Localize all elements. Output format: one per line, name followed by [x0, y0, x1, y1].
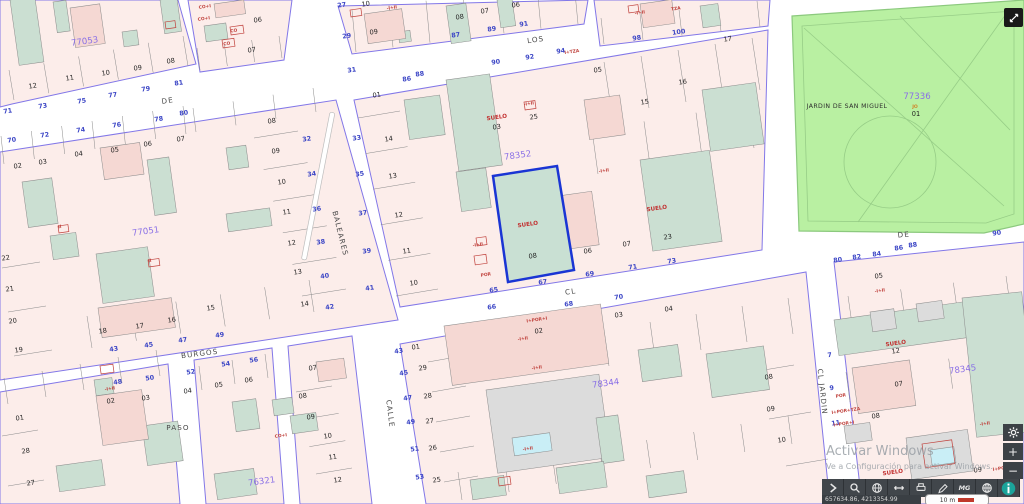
parcel-number: 28: [21, 446, 30, 455]
parcel-number: 07: [176, 134, 185, 143]
street-number: 90: [491, 57, 501, 66]
parcel[interactable]: [404, 95, 445, 140]
street-number: 65: [489, 285, 499, 294]
parcel[interactable]: [204, 23, 228, 42]
mg-label: MG: [959, 484, 971, 492]
parcel-number: 05: [110, 145, 119, 154]
parcel-number: 10: [777, 435, 786, 444]
parcel-number: 17: [723, 34, 732, 43]
parcel-number: 05: [214, 380, 223, 389]
street-number: 74: [76, 125, 86, 134]
parcel-number: 23: [663, 232, 672, 241]
street-number: 92: [525, 52, 535, 61]
parcel-number: 16: [167, 315, 176, 324]
parcel-number: 06: [253, 15, 262, 24]
block-id: 77336: [903, 92, 930, 102]
gear-icon: [1007, 426, 1020, 439]
street-number: 73: [667, 256, 677, 265]
parcel-number: 08: [528, 251, 537, 260]
parcel-number: 06: [583, 246, 592, 255]
parcel-number: 10: [323, 431, 332, 440]
street-number: 7: [827, 351, 833, 360]
pencil-icon: [937, 482, 949, 494]
parcel-number: 08: [298, 391, 307, 400]
parcel-number: 12: [28, 81, 37, 90]
parcel[interactable]: [702, 82, 764, 151]
parcel-number: 16: [678, 77, 687, 86]
street-number: 87: [451, 30, 461, 39]
street-number: 75: [77, 96, 87, 105]
parcel[interactable]: [640, 150, 722, 251]
parcel-number: 06: [511, 0, 520, 9]
parcel[interactable]: [930, 447, 956, 466]
parcel-number: 13: [293, 267, 302, 276]
parcel-number: 02: [534, 326, 543, 335]
street-number: 78: [154, 114, 164, 123]
parcel[interactable]: [640, 0, 675, 28]
parcel[interactable]: [226, 145, 249, 170]
street-number: 49: [406, 417, 416, 426]
parcel-number: 02: [13, 161, 22, 170]
parcel-number: 01: [372, 90, 381, 99]
parcel[interactable]: [852, 360, 916, 414]
street-number: 86: [894, 243, 904, 252]
parcel-number: 04: [664, 304, 673, 313]
scale-label: 10 m: [940, 497, 955, 504]
settings-button[interactable]: [1003, 424, 1023, 441]
parcel-number: 21: [5, 284, 14, 293]
parcel-number: 19: [14, 345, 23, 354]
scale-indicator: 10 m: [925, 494, 989, 504]
street-number: 91: [519, 19, 529, 28]
street-number: 37: [358, 208, 368, 217]
globe-icon: [981, 482, 993, 494]
construction-label: POR: [835, 392, 847, 399]
street-number: 70: [7, 135, 17, 144]
street-number: 45: [399, 368, 409, 377]
street-number: 73: [38, 101, 48, 110]
street-number: 90: [992, 228, 1002, 237]
street-number: 71: [628, 262, 638, 271]
parcel-number: 01: [411, 342, 420, 351]
parcel-number: 15: [640, 97, 649, 106]
street-number: 43: [109, 344, 119, 353]
parcel-number: 27: [26, 478, 35, 487]
parcel-number: 25: [432, 475, 441, 484]
street-number: 67: [538, 277, 548, 286]
street-number: 42: [325, 302, 335, 311]
street-number: 56: [249, 355, 259, 364]
parcel-number: 14: [384, 134, 393, 143]
parcel-number: 09: [369, 27, 378, 36]
street-number: 40: [320, 271, 330, 280]
street-number: 72: [40, 130, 50, 139]
street-number: 69: [585, 269, 595, 278]
street-number: 79: [141, 84, 151, 93]
street-number: 88: [908, 240, 918, 249]
street-number: 54: [221, 359, 231, 368]
parcel-number: 02: [106, 396, 115, 405]
plus-icon: +: [1008, 446, 1018, 458]
parcel[interactable]: [456, 168, 491, 212]
street-name: CL: [564, 286, 576, 296]
parcel-number: 08: [871, 411, 880, 420]
parcel-number: 12: [394, 210, 403, 219]
street-number: 29: [342, 31, 352, 40]
parcel[interactable]: [232, 399, 260, 432]
street-name: DE: [161, 95, 174, 106]
parcel-number: 29: [418, 363, 427, 372]
street-number: 27: [337, 0, 347, 9]
parcel-number: 04: [183, 386, 192, 395]
street-number: 71: [3, 106, 13, 115]
parcel-number: 03: [614, 310, 623, 319]
parcel-number: 08: [455, 12, 464, 21]
street-number: 33: [352, 133, 362, 142]
parcel-number: 12: [333, 475, 342, 484]
street-number: 77: [108, 90, 118, 99]
parcel-number: 08: [764, 372, 773, 381]
construction-label: CO: [230, 28, 238, 35]
parcel-number: 07: [894, 379, 903, 388]
parcel-number: 08: [267, 116, 276, 125]
street-number: 51: [410, 444, 420, 453]
street-number: 49: [215, 330, 225, 339]
coordinates-readout: 657634.86, 4213354.99: [822, 495, 921, 504]
sphere-icon: [871, 482, 883, 494]
street-number: 35: [355, 169, 365, 178]
street-number: 45: [144, 340, 154, 349]
parcel-number: 01: [912, 110, 920, 118]
street-number: 38: [316, 237, 326, 246]
parcel-number: 11: [65, 73, 74, 82]
minus-icon: −: [1008, 465, 1018, 477]
street-number: 66: [487, 302, 497, 311]
parcel-number: 22: [1, 253, 10, 262]
parcel[interactable]: [316, 358, 347, 382]
parcel-number: 05: [593, 65, 602, 74]
parcel[interactable]: [584, 95, 625, 140]
parcel-number: 10: [409, 278, 418, 287]
street-number: 47: [403, 393, 413, 402]
catastro-map-viewer: 77053770517835278344783457632177336JARDI…: [0, 0, 1024, 504]
street-number: 48: [113, 377, 123, 386]
parcel-number: 11: [328, 452, 337, 461]
search-icon: [849, 482, 861, 494]
parcel-number: 05: [874, 271, 883, 280]
parcel-number: 03: [38, 157, 47, 166]
parcel-number: 09: [306, 412, 315, 421]
fullscreen-button[interactable]: [1004, 8, 1023, 27]
parcel-number: 06: [143, 139, 152, 148]
parcel-number: 17: [135, 321, 144, 330]
parcel-number: 07: [247, 45, 256, 54]
street-number: 43: [394, 346, 404, 355]
parcel[interactable]: [706, 346, 770, 398]
parcel[interactable]: [272, 397, 294, 416]
info-button[interactable]: [998, 479, 1020, 497]
zoom-in-button[interactable]: +: [1003, 443, 1023, 460]
parcel-number: 03: [141, 393, 150, 402]
chevron-right-icon: [827, 482, 839, 494]
park-area[interactable]: [792, 0, 1024, 233]
street-name: CALLE: [384, 399, 396, 428]
parcel-number: 13: [388, 171, 397, 180]
street-number: 34: [307, 169, 317, 178]
info-icon: [1001, 481, 1016, 496]
cadastral-map-canvas[interactable]: 77053770517835278344783457632177336JARDI…: [0, 0, 1024, 504]
parcel[interactable]: [870, 309, 897, 332]
parcel-number: 09: [271, 146, 280, 155]
parcel-number: 14: [300, 299, 309, 308]
construction-label: I+TZA: [564, 48, 580, 56]
parcel-number: 07: [308, 363, 317, 372]
parcel-number: 03: [492, 122, 501, 131]
parcel-number: 10: [277, 177, 286, 186]
parcel-number: 09: [973, 465, 982, 474]
street-number: 80: [833, 255, 843, 264]
parcel-number: 09: [133, 63, 142, 72]
parcel[interactable]: [96, 247, 154, 304]
parcel-number: 04: [74, 149, 83, 158]
parcel-number: 27: [425, 416, 434, 425]
street-number: 82: [852, 252, 862, 261]
parcel-number: 18: [98, 326, 107, 335]
zoom-out-button[interactable]: −: [1003, 462, 1023, 479]
street-number: 47: [178, 335, 188, 344]
parcel[interactable]: [22, 178, 58, 228]
parcel[interactable]: [916, 300, 944, 321]
street-number: 31: [347, 65, 357, 74]
parcel-number: 25: [529, 112, 538, 121]
parcel[interactable]: [638, 344, 682, 381]
parcel-number: 28: [423, 391, 432, 400]
parcel-number: 07: [622, 239, 631, 248]
street-number: 39: [362, 246, 372, 255]
parcel[interactable]: [50, 232, 79, 259]
parcel-number: 11: [402, 246, 411, 255]
street-number: 36: [312, 204, 322, 213]
horizontal-resize-arrow-icon: [893, 482, 905, 494]
street-number: 88: [415, 69, 425, 78]
parcel-number: 26: [428, 443, 437, 452]
parcel-number: 08: [166, 56, 175, 65]
street-number: 86: [402, 74, 412, 83]
parcel-number: 15: [206, 303, 215, 312]
street-number: 68: [564, 299, 574, 308]
parcel-number: 11: [282, 207, 291, 216]
printer-icon: [915, 482, 927, 494]
park-name: JARDIN DE SAN MIGUEL: [806, 103, 888, 110]
scale-red-mark: [958, 498, 974, 502]
street-number: 53: [415, 472, 425, 481]
parcel-number: 10: [101, 68, 110, 77]
parcel[interactable]: [100, 142, 144, 179]
parcel-number: 12: [891, 346, 900, 355]
street-number: 41: [365, 283, 375, 292]
street-number: 84: [872, 249, 882, 258]
street-number: 70: [614, 292, 624, 301]
street-number: 89: [487, 24, 497, 33]
street-number: 80: [179, 108, 189, 117]
street-number: 52: [186, 367, 196, 376]
parcel-number: 07: [480, 6, 489, 15]
street-number: 76: [112, 120, 122, 129]
street-name: PASO: [166, 423, 189, 432]
street-name: DE: [897, 229, 910, 239]
construction-label: CO: [223, 41, 231, 48]
parcel-number: 09: [766, 404, 775, 413]
parcel[interactable]: [122, 30, 139, 47]
parcel[interactable]: [364, 9, 406, 44]
parcel-number: 20: [8, 316, 17, 325]
street-number: 50: [145, 373, 155, 382]
street-number: 98: [632, 33, 642, 42]
construction-outline[interactable]: [100, 364, 114, 374]
parcel-number: 12: [287, 238, 296, 247]
parcel[interactable]: [700, 3, 721, 27]
street-number: 81: [174, 78, 184, 87]
parcel-number: 01: [15, 413, 24, 422]
parcel-number: 10: [361, 0, 370, 9]
street-number: 9: [829, 384, 835, 393]
parcel-number: 06: [244, 375, 253, 384]
fullscreen-diagonal-arrows-icon: [1008, 12, 1020, 24]
street-name: LOS: [526, 34, 544, 45]
street-number: 32: [302, 134, 312, 143]
